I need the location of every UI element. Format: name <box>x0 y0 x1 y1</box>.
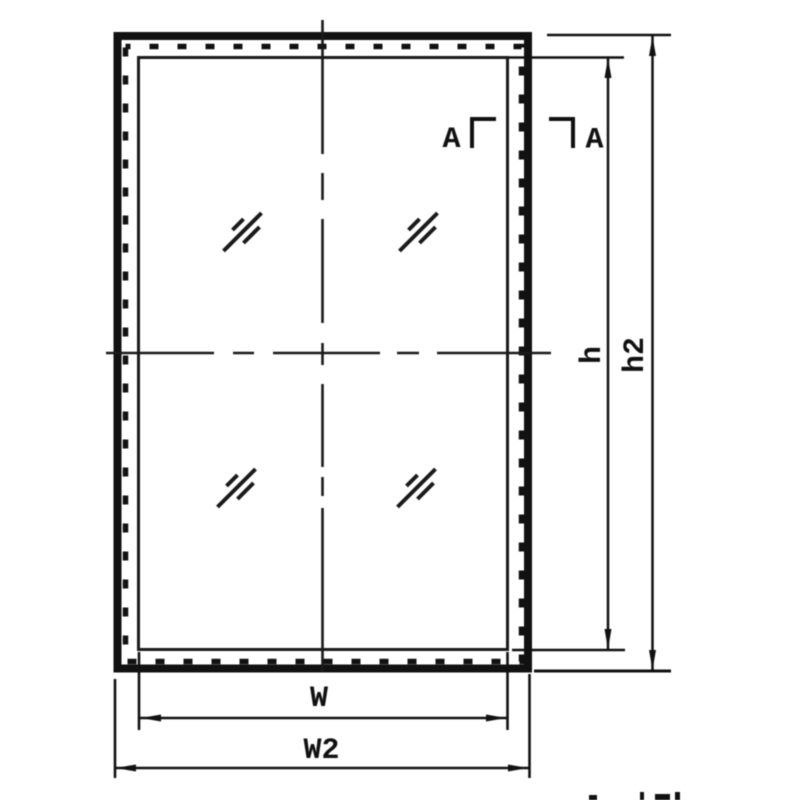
svg-text:W2: W2 <box>303 734 339 768</box>
svg-text:h: h <box>576 346 610 364</box>
svg-text:W: W <box>310 682 328 716</box>
svg-text:h2: h2 <box>619 337 653 373</box>
svg-text:A: A <box>585 124 603 158</box>
svg-text:A: A <box>442 123 460 157</box>
